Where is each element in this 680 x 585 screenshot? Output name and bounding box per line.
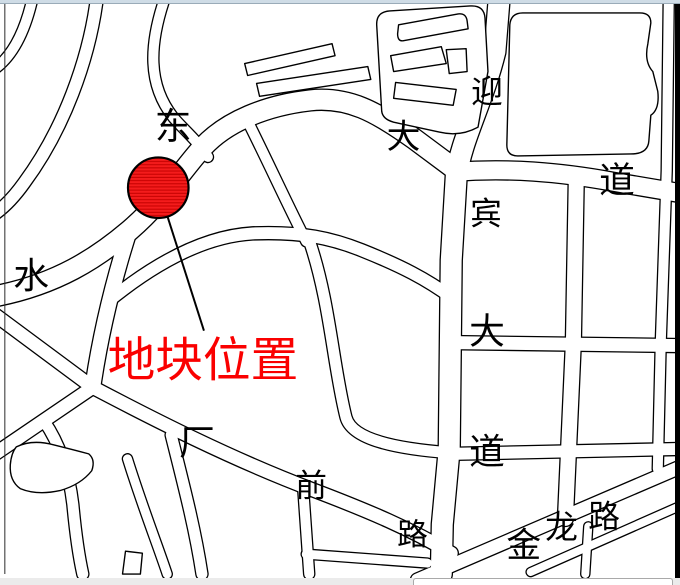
street-label: 厂: [179, 423, 215, 463]
road: [248, 121, 307, 241]
screenshot-root: 地块位置 东水大道迎宾大道厂前路金龙路: [0, 0, 680, 585]
street-label: 大: [469, 312, 505, 352]
map-image: 地块位置 东水大道迎宾大道厂前路金龙路: [0, 4, 680, 578]
road: [306, 554, 427, 563]
bottom-panel-edge: [413, 578, 673, 585]
street-label: 路: [588, 499, 620, 534]
street-label: 宾: [470, 196, 502, 231]
city-block: [10, 442, 93, 492]
street-label: 道: [599, 161, 635, 201]
road: [454, 170, 680, 193]
street-label: 东: [155, 106, 192, 147]
street-label: 龙: [545, 509, 578, 546]
city-block: [446, 49, 467, 74]
street-label: 道: [469, 432, 505, 472]
street-label: 路: [397, 518, 428, 552]
street-label: 迎: [471, 74, 503, 109]
city-block: [123, 551, 143, 574]
road: [109, 233, 453, 301]
parcel-marker: [128, 157, 189, 218]
street-label: 金: [506, 526, 541, 565]
street-label: 大: [387, 118, 421, 156]
street-label: 前: [295, 469, 327, 504]
city-block: [507, 13, 658, 156]
road: [0, 316, 93, 388]
street-label: 水: [13, 256, 49, 296]
map-canvas: 地块位置 东水大道迎宾大道厂前路金龙路: [0, 4, 680, 578]
city-block: [245, 44, 335, 76]
window-right-edge: [675, 4, 680, 581]
window-bottom-edge: [0, 578, 680, 585]
parcel-label: 地块位置: [108, 335, 299, 387]
